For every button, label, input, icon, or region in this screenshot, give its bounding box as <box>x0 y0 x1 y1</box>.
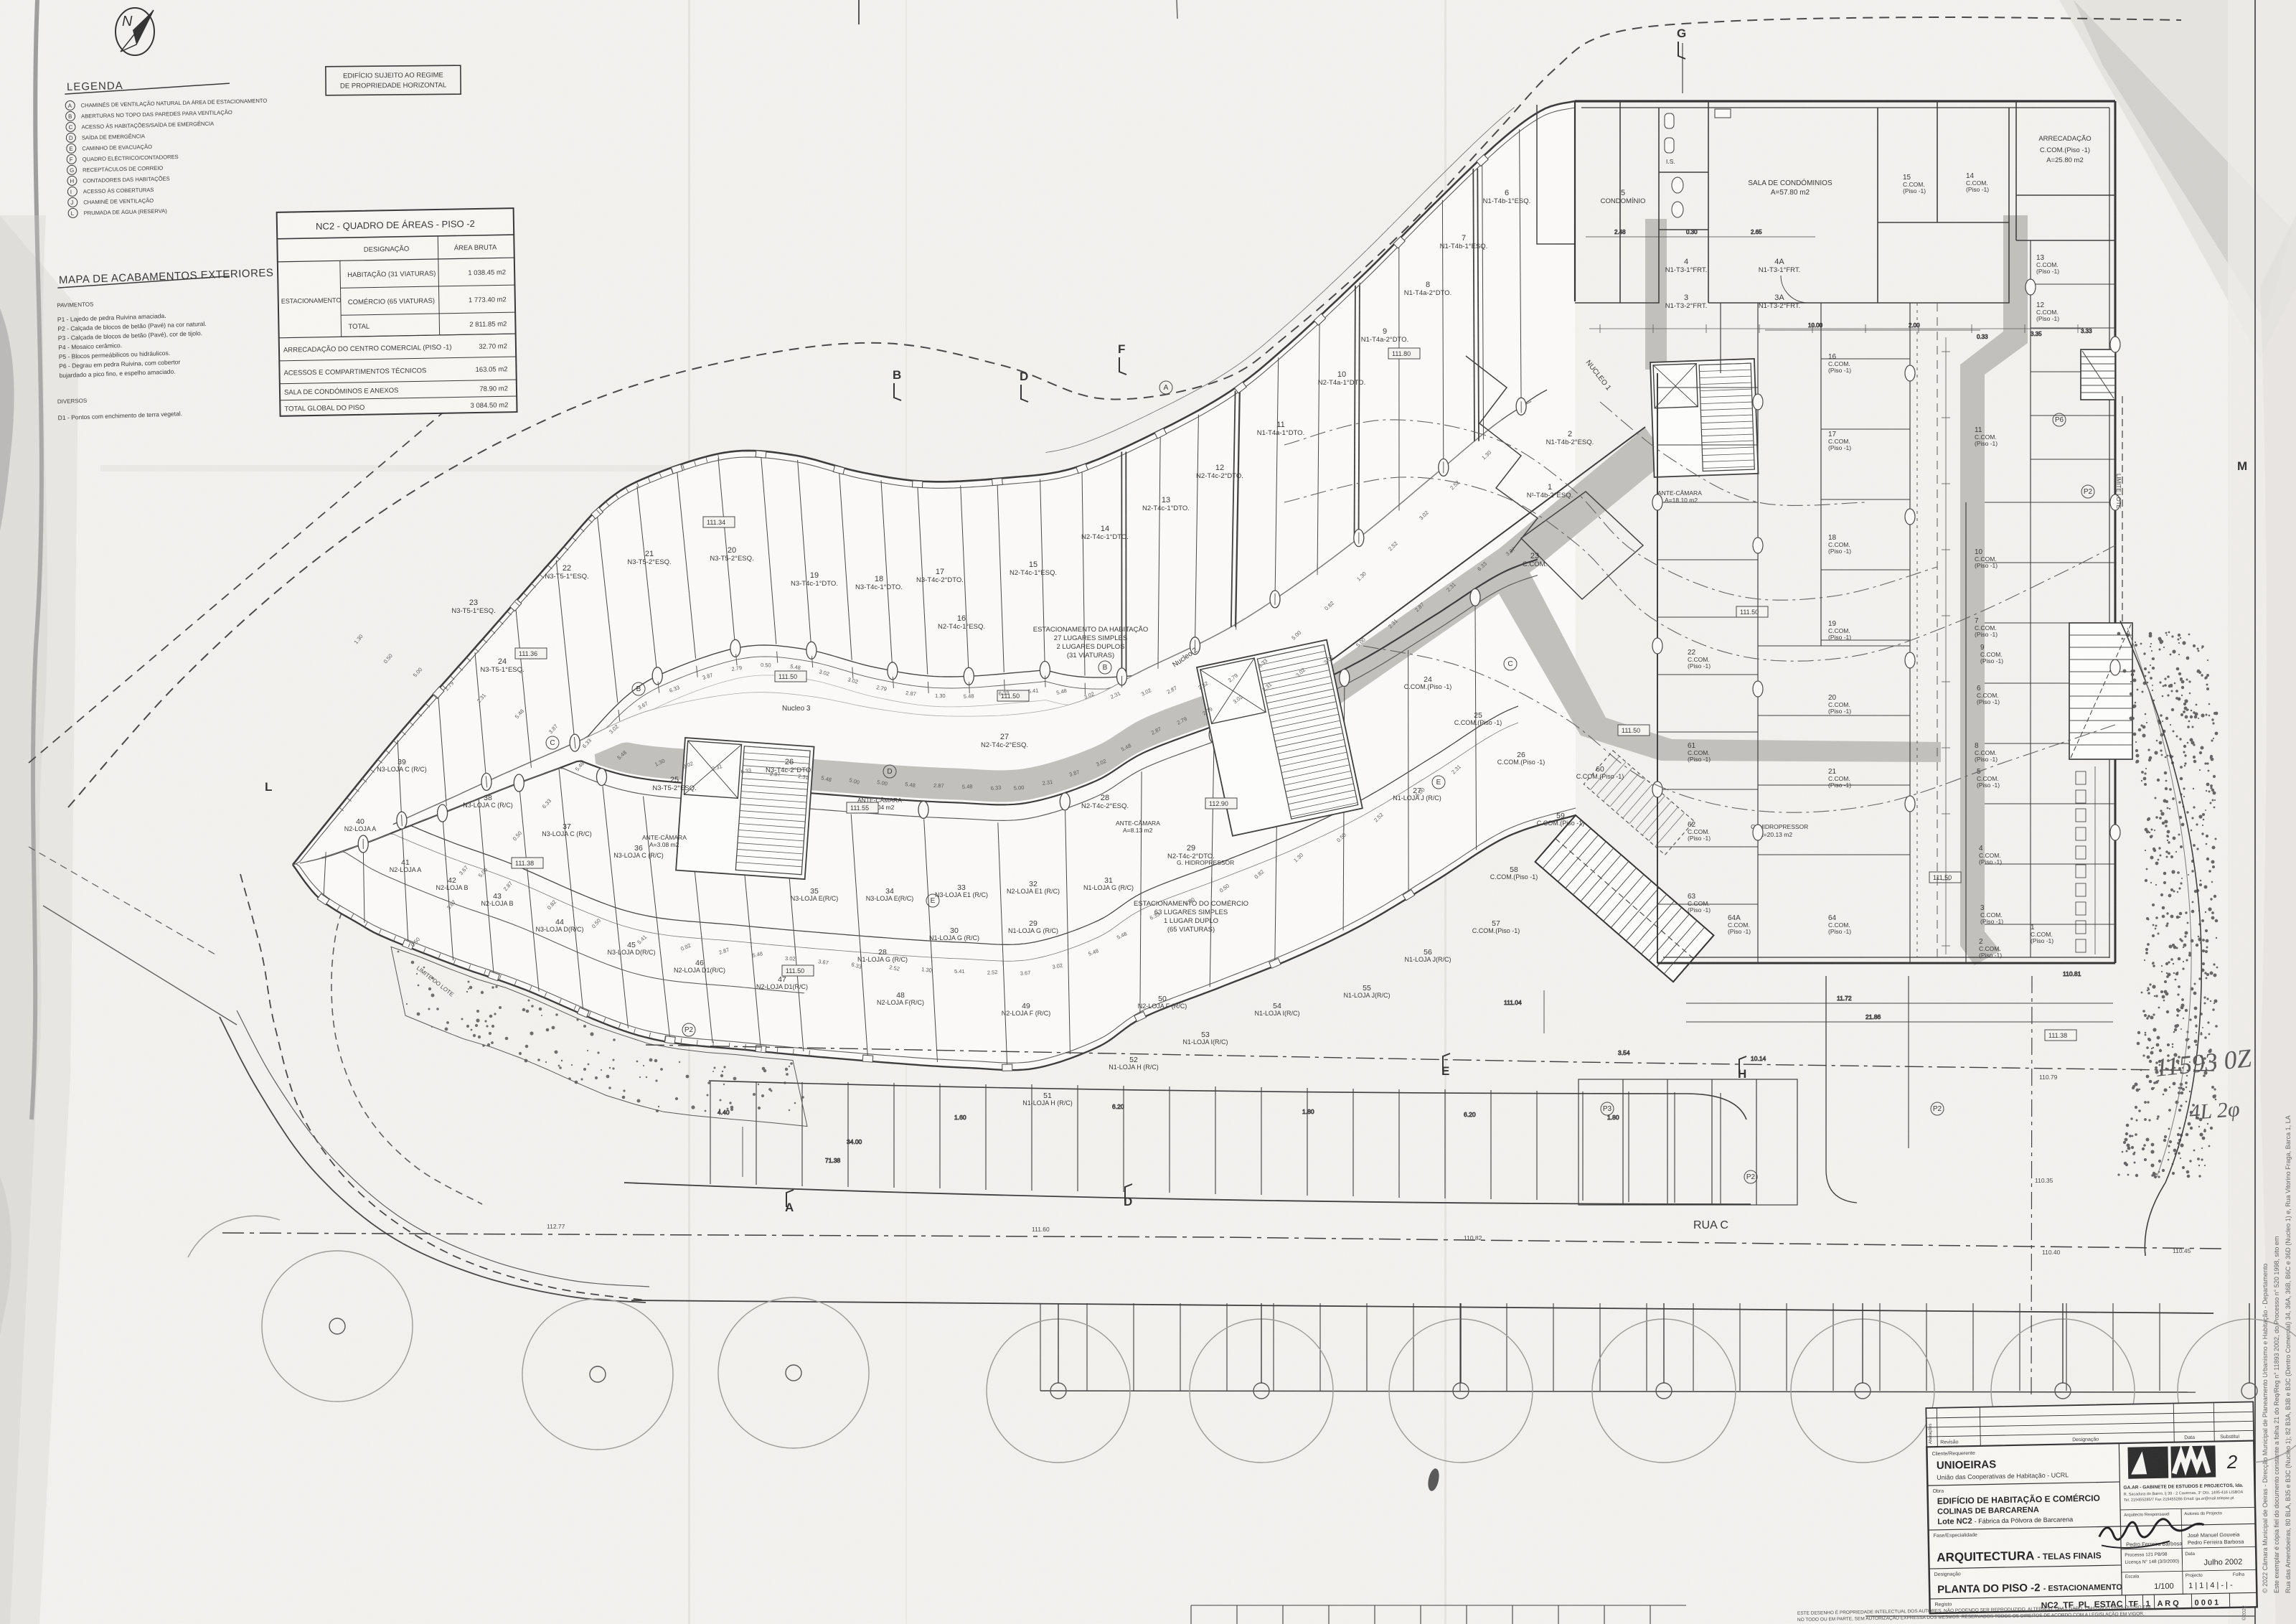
svg-text:© 2022 Câmara Municipal de: © 2022 Câmara Municipal de Oeiras - Dire… <box>2262 1264 2269 1593</box>
svg-text:0.30: 0.30 <box>1686 229 1698 235</box>
svg-text:0.33: 0.33 <box>1977 334 1988 340</box>
svg-text:Rua das Amendoeiras, 80 BLA, B: Rua das Amendoeiras, 80 BLA, B35 e B3C (… <box>2285 1115 2292 1593</box>
svg-text:3.33: 3.33 <box>2081 328 2092 334</box>
svg-text:Este exemplar é cópia fiel do: Este exemplar é cópia fiel do documento … <box>2273 1236 2280 1593</box>
svg-text:2.48: 2.48 <box>1614 229 1626 235</box>
svg-text:3.35: 3.35 <box>2031 331 2042 337</box>
svg-text:2.65: 2.65 <box>1751 229 1762 235</box>
svg-text:©2022: ©2022 <box>2241 1605 2247 1620</box>
svg-text:2.00: 2.00 <box>1909 322 1920 329</box>
svg-text:10.00: 10.00 <box>1808 322 1823 329</box>
